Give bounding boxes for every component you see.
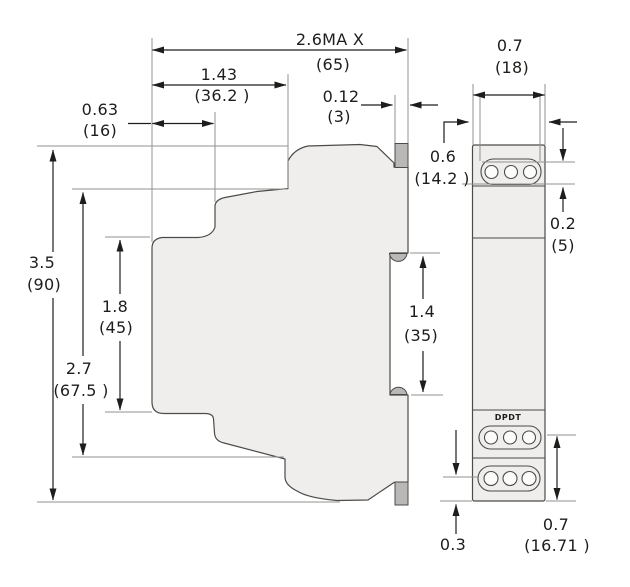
dim-strip-inset-inches: 0.2 xyxy=(550,216,576,232)
dim-notch-inches: 1.4 xyxy=(409,304,435,320)
din-rail-clip-top xyxy=(390,254,408,262)
din-rail-tab-bottom xyxy=(395,482,408,505)
dim-front-width-inches: 0.7 xyxy=(497,38,523,54)
terminal-block-bottom xyxy=(478,466,540,491)
technical-drawing-canvas: 2.6MA X (65) 1.43 (36.2 ) 0.63 (16) 0.12… xyxy=(0,0,630,587)
dim-overall-depth-inches: 2.6MA X xyxy=(296,32,364,48)
din-rail-clip-bottom xyxy=(390,387,407,394)
dim-overall-height-mm: (90) xyxy=(27,277,61,293)
dim-top-depth-mm: (16) xyxy=(83,123,117,139)
dim-body-height-mm: (45) xyxy=(99,320,133,336)
front-view xyxy=(473,145,546,501)
dim-mid-height-mm: (67.5 ) xyxy=(53,383,108,399)
dim-upper-depth-mm: (36.2 ) xyxy=(194,88,249,104)
terminal-block-top xyxy=(481,159,541,185)
dim-bottom-offset-inches: 0.3 xyxy=(440,537,466,553)
dim-top-depth-inches: 0.63 xyxy=(82,102,119,118)
dim-upper-depth-inches: 1.43 xyxy=(201,67,238,83)
dim-notch-mm: (35) xyxy=(404,328,438,344)
dim-front-width-mm: (18) xyxy=(495,60,529,76)
terminal-block-dpdt xyxy=(479,426,541,449)
dim-terminal-zone-inches: 0.7 xyxy=(543,517,569,533)
dim-inner-width-inches: 0.6 xyxy=(430,149,456,165)
dim-overall-depth-mm: (65) xyxy=(316,57,350,73)
side-view xyxy=(152,144,408,506)
dim-terminal-zone-mm: (16.71 ) xyxy=(524,538,590,554)
dim-mid-height-inches: 2.7 xyxy=(66,361,92,377)
dim-inner-width-leader xyxy=(444,122,469,143)
dim-body-height-inches: 1.8 xyxy=(102,299,128,315)
dim-tab-inches: 0.12 xyxy=(323,89,360,105)
din-rail-tab-top xyxy=(395,144,408,168)
dim-overall-height-inches: 3.5 xyxy=(29,255,55,271)
dim-inner-width-mm: (14.2 ) xyxy=(414,171,469,187)
dim-strip-inset-mm: (5) xyxy=(551,238,575,254)
module-side-profile xyxy=(152,145,408,501)
relay-type-label: DPDT xyxy=(495,414,522,422)
dim-tab-mm: (3) xyxy=(327,109,351,125)
technical-drawing-svg xyxy=(0,0,630,587)
